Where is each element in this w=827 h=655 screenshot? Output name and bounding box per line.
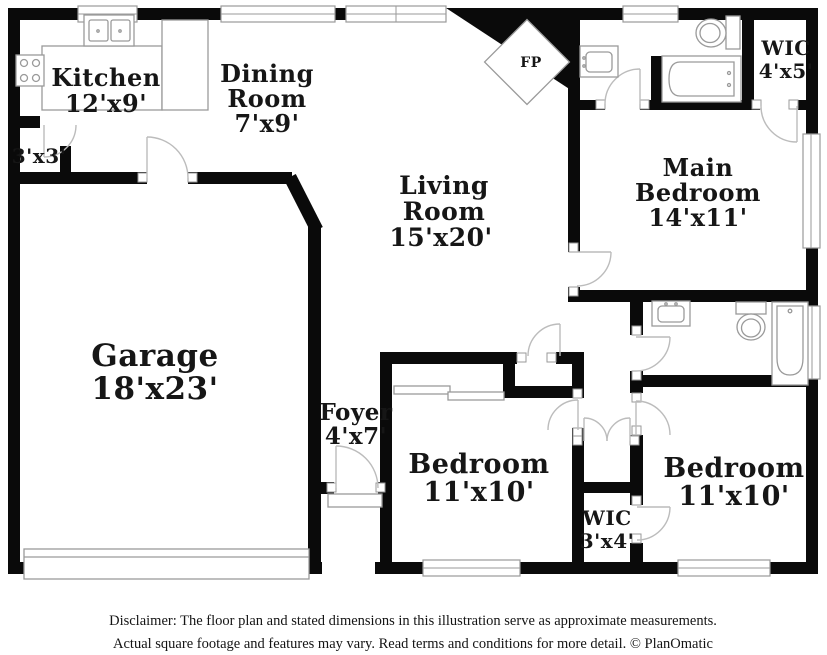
kitchen-label: Kitchen xyxy=(51,63,160,92)
stove xyxy=(16,55,44,86)
garage-diagonal-wall xyxy=(290,177,317,230)
living-label-2: Room xyxy=(403,197,486,226)
front-entry-door xyxy=(336,446,378,488)
disclaimer-line-2: Actual square footage and features may v… xyxy=(113,636,713,652)
wall-segment xyxy=(8,8,20,574)
wall-segment xyxy=(806,376,818,574)
closet-sliding-doors xyxy=(394,386,504,400)
wic-main-dims: 4'x5' xyxy=(759,59,814,83)
wall-segment xyxy=(380,352,392,562)
wic-main-label: WIC xyxy=(760,36,810,60)
kitchen-sink xyxy=(84,15,134,46)
wall-segment xyxy=(568,8,580,252)
bathroom-window xyxy=(623,6,678,22)
wall-segment xyxy=(8,562,26,574)
kitchen-dims: 12'x9' xyxy=(65,89,147,118)
wall-segment xyxy=(375,562,423,574)
wall-segment xyxy=(742,8,754,110)
main-bath-tub xyxy=(662,56,741,102)
rear-bath-toilet xyxy=(736,302,766,340)
wall-segment xyxy=(503,386,577,398)
wic-hall-door xyxy=(637,507,670,540)
hall-closet-door xyxy=(528,324,560,356)
wall-segment xyxy=(556,352,572,364)
floor-plan-drawing: Kitchen 12'x9' Dining Room 7'x9' 3'x3' L… xyxy=(0,0,827,655)
dining-dims: 7'x9' xyxy=(235,109,300,138)
garage-interior-door xyxy=(147,137,188,178)
wic-hall-label: WIC xyxy=(581,506,631,530)
wic-main-door xyxy=(761,106,797,142)
front-door-threshold xyxy=(328,494,382,507)
garage-dims: 18'x23' xyxy=(91,371,218,407)
living-dims: 15'x20' xyxy=(389,223,492,252)
garage-door xyxy=(24,549,309,579)
entry-closet-dims: 3'x3' xyxy=(12,144,67,168)
main-bedroom-window xyxy=(803,134,820,248)
floor-plan-page: { "floor_plan": { "fireplace_label": "FP… xyxy=(0,0,827,655)
wall-segment xyxy=(520,562,678,574)
linen-closet-doors xyxy=(584,418,630,441)
rear-bath-tub xyxy=(772,302,808,385)
main-bath-toilet xyxy=(696,16,740,49)
fireplace-label: FP xyxy=(520,55,541,71)
bedroom-front-window xyxy=(423,560,520,576)
rear-bath-vanity xyxy=(652,301,690,326)
foyer-label: Foyer xyxy=(319,399,392,426)
wall-segment xyxy=(188,172,292,184)
garage-label: Garage xyxy=(91,338,218,374)
wall-segment xyxy=(572,482,643,493)
main-bedroom-door xyxy=(577,252,611,286)
dining-window xyxy=(221,6,335,22)
wall-segment xyxy=(335,8,346,20)
main-bath-vanity xyxy=(580,46,618,77)
wall-segment xyxy=(8,172,147,184)
wall-segment xyxy=(798,100,818,110)
bedroom-front-label: Bedroom xyxy=(408,449,549,480)
wall-segment xyxy=(770,562,818,574)
bedroom-front-door xyxy=(548,400,578,430)
wall-segment xyxy=(308,224,321,562)
wall-segment xyxy=(8,116,40,128)
bedroom-front-dims: 11'x10' xyxy=(423,477,534,508)
living-label-1: Living xyxy=(399,171,489,200)
bedroom-rear-dims: 11'x10' xyxy=(678,481,789,512)
living-window xyxy=(346,6,446,22)
wall-segment xyxy=(392,352,517,364)
wall-segment xyxy=(137,8,221,20)
foyer-dims: 4'x7' xyxy=(325,423,387,450)
disclaimer-line-1: Disclaimer: The floor plan and stated di… xyxy=(109,613,717,629)
bedroom-rear-label: Bedroom xyxy=(663,453,804,484)
main-bedroom-dims: 14'x11' xyxy=(648,203,747,232)
bedroom-rear-window xyxy=(678,560,770,576)
bathtub-privacy-wall xyxy=(651,56,662,102)
wall-segment xyxy=(578,8,623,20)
disclaimer: Disclaimer: The floor plan and stated di… xyxy=(109,613,717,652)
rear-bathroom-door xyxy=(636,337,670,371)
wall-segment xyxy=(572,290,818,302)
wic-hall-dims: 3'x4' xyxy=(580,529,635,553)
